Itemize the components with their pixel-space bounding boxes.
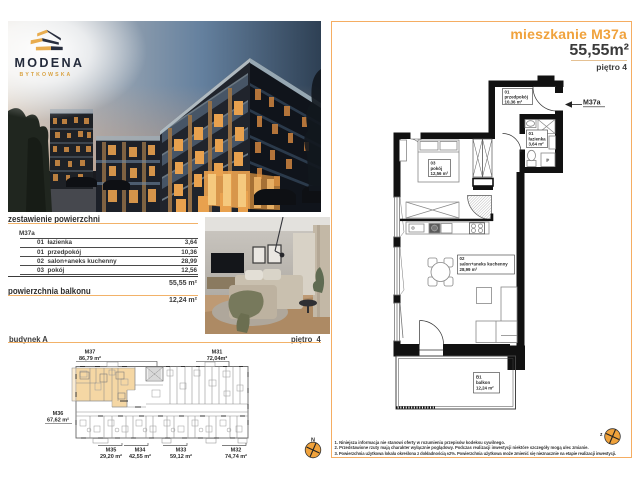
svg-text:M34: M34 bbox=[135, 448, 147, 454]
svg-text:B1: B1 bbox=[476, 375, 482, 380]
svg-text:M37a: M37a bbox=[583, 100, 601, 107]
svg-text:42,55 m²: 42,55 m² bbox=[129, 453, 151, 460]
svg-text:M37: M37 bbox=[85, 350, 96, 356]
svg-text:salon+aneks kuchenny: salon+aneks kuchenny bbox=[460, 262, 509, 267]
svg-text:balkon: balkon bbox=[476, 380, 490, 385]
svg-text:67,62 m²: 67,62 m² bbox=[47, 417, 69, 424]
svg-text:72,04m²: 72,04m² bbox=[207, 355, 228, 362]
svg-text:01: 01 bbox=[529, 131, 534, 136]
svg-text:3,64 m²: 3,64 m² bbox=[529, 142, 545, 147]
svg-text:BYTKOWSKA: BYTKOWSKA bbox=[20, 72, 73, 78]
svg-text:03: 03 bbox=[431, 161, 436, 166]
svg-text:M36: M36 bbox=[53, 411, 64, 417]
svg-text:M33: M33 bbox=[176, 448, 187, 454]
svg-text:12,24 m²: 12,24 m² bbox=[476, 386, 494, 391]
svg-text:59,12 m²: 59,12 m² bbox=[170, 453, 192, 460]
svg-text:M32: M32 bbox=[231, 448, 242, 454]
svg-text:M31: M31 bbox=[212, 350, 223, 356]
svg-text:12,56 m²: 12,56 m² bbox=[431, 171, 449, 176]
svg-text:29,20 m²: 29,20 m² bbox=[100, 453, 122, 460]
svg-text:10,36 m²: 10,36 m² bbox=[505, 100, 523, 105]
svg-text:86,79 m²: 86,79 m² bbox=[79, 355, 101, 362]
svg-text:łazienka: łazienka bbox=[529, 136, 547, 141]
svg-text:z: z bbox=[600, 432, 603, 438]
svg-text:02: 02 bbox=[460, 256, 465, 261]
svg-text:74,74 m²: 74,74 m² bbox=[225, 453, 247, 460]
svg-text:28,99 m²: 28,99 m² bbox=[460, 267, 478, 272]
svg-text:M35: M35 bbox=[106, 448, 117, 454]
svg-text:MODENA: MODENA bbox=[15, 56, 85, 70]
